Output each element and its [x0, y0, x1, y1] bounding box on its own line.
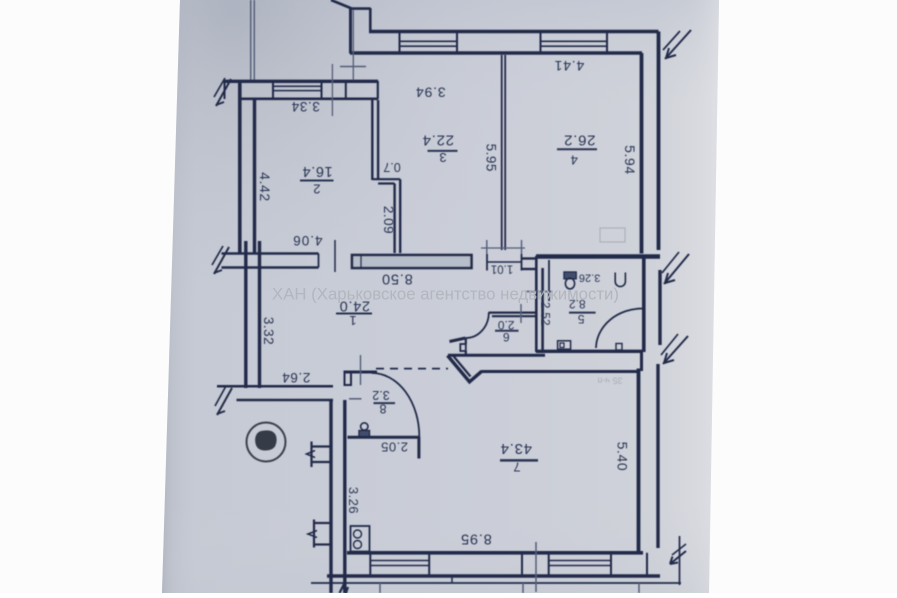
svg-text:2.05: 2.05 [381, 440, 408, 455]
svg-text:5.40: 5.40 [615, 442, 631, 472]
svg-text:4.06: 4.06 [292, 233, 322, 248]
svg-text:2: 2 [313, 181, 320, 196]
svg-text:4: 4 [571, 153, 578, 168]
svg-text:22.4: 22.4 [422, 132, 454, 149]
svg-text:4.41: 4.41 [554, 58, 584, 74]
svg-text:16.4: 16.4 [302, 163, 333, 179]
svg-text:3.94: 3.94 [415, 85, 445, 101]
svg-text:35 ч-п: 35 ч-п [597, 376, 622, 386]
svg-text:4.42: 4.42 [257, 172, 273, 202]
svg-text:6: 6 [503, 330, 510, 344]
svg-text:5: 5 [578, 312, 585, 326]
svg-text:3.26: 3.26 [579, 271, 600, 283]
svg-text:26.2: 26.2 [564, 132, 596, 149]
svg-text:3.34: 3.34 [291, 99, 320, 114]
svg-text:7: 7 [513, 460, 520, 475]
svg-text:1: 1 [349, 313, 356, 328]
svg-text:3: 3 [439, 150, 446, 165]
svg-text:2.52: 2.52 [538, 302, 550, 326]
svg-text:3.26: 3.26 [346, 487, 361, 514]
svg-text:3.2: 3.2 [372, 388, 389, 402]
svg-text:1.01: 1.01 [491, 262, 513, 274]
svg-text:8.95: 8.95 [460, 531, 491, 547]
svg-text:0.7: 0.7 [383, 160, 400, 174]
svg-text:5.95: 5.95 [484, 144, 499, 172]
svg-text:2.64: 2.64 [282, 370, 311, 385]
svg-text:ХАН (Харьковское агентство нед: ХАН (Харьковское агентство недвижимости) [272, 285, 619, 304]
svg-text:43.4: 43.4 [500, 440, 532, 457]
svg-text:5.94: 5.94 [622, 145, 638, 175]
svg-text:2.09: 2.09 [381, 206, 396, 234]
svg-text:3.32: 3.32 [261, 317, 276, 345]
